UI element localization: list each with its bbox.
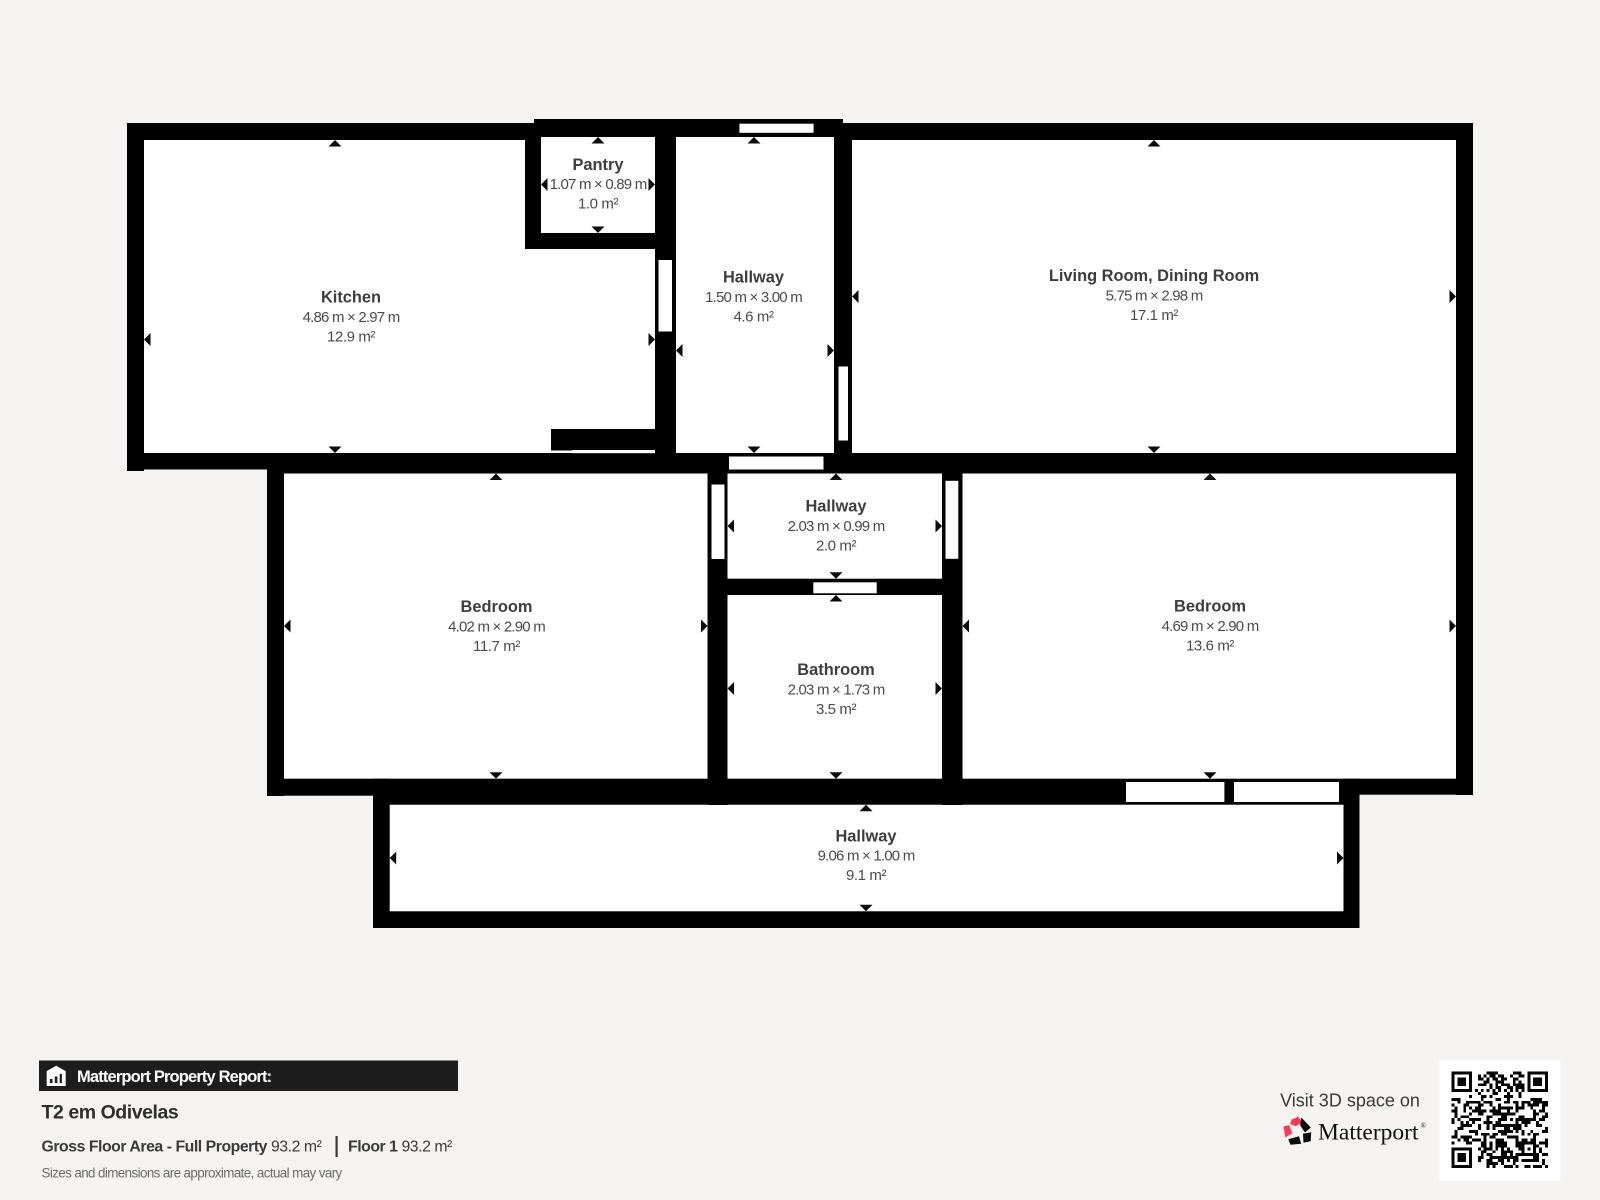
svg-text:1.50 m × 3.00 m: 1.50 m × 3.00 m [705, 289, 802, 306]
svg-text:Matterport Property Report:: Matterport Property Report: [77, 1068, 271, 1086]
svg-text:4.69 m × 2.90 m: 4.69 m × 2.90 m [1162, 618, 1259, 635]
svg-text:Hallway: Hallway [723, 269, 785, 287]
svg-text:4.02 m × 2.90 m: 4.02 m × 2.90 m [448, 618, 545, 635]
svg-text:1.0 m²: 1.0 m² [578, 196, 619, 213]
svg-text:Hallway: Hallway [835, 827, 897, 845]
svg-text:Bedroom: Bedroom [1174, 598, 1246, 616]
svg-text:Bedroom: Bedroom [461, 598, 533, 616]
svg-text:12.9 m²: 12.9 m² [327, 328, 375, 345]
svg-text:Bathroom: Bathroom [797, 661, 874, 679]
svg-text:Gross Floor Area - Full Proper: Gross Floor Area - Full Property 93.2 m² [42, 1138, 322, 1155]
svg-text:4.6 m²: 4.6 m² [733, 308, 774, 325]
svg-text:5.75 m × 2.98 m: 5.75 m × 2.98 m [1106, 287, 1203, 304]
svg-text:2.03 m × 1.73 m: 2.03 m × 1.73 m [788, 681, 885, 698]
svg-text:Floor 1 93.2 m²: Floor 1 93.2 m² [348, 1138, 452, 1155]
svg-text:1.07 m × 0.89 m: 1.07 m × 0.89 m [550, 176, 647, 193]
svg-text:17.1 m²: 17.1 m² [1130, 307, 1178, 324]
svg-text:Visit 3D space on: Visit 3D space on [1280, 1090, 1420, 1110]
svg-text:4.86 m × 2.97 m: 4.86 m × 2.97 m [303, 309, 400, 326]
svg-text:3.5 m²: 3.5 m² [816, 701, 857, 718]
svg-text:®: ® [1421, 1122, 1427, 1130]
svg-text:9.06 m × 1.00 m: 9.06 m × 1.00 m [818, 848, 915, 865]
svg-text:2.03 m × 0.99 m: 2.03 m × 0.99 m [788, 518, 885, 535]
svg-text:9.1 m²: 9.1 m² [846, 867, 887, 884]
svg-text:13.6 m²: 13.6 m² [1186, 637, 1234, 654]
svg-text:Matterport: Matterport [1318, 1120, 1419, 1146]
svg-text:Living Room, Dining Room: Living Room, Dining Room [1049, 267, 1259, 285]
svg-text:Hallway: Hallway [805, 498, 867, 516]
svg-text:T2 em Odivelas: T2 em Odivelas [42, 1102, 179, 1124]
svg-text:Kitchen: Kitchen [321, 289, 381, 307]
svg-text:Sizes and dimensions are appro: Sizes and dimensions are approximate, ac… [42, 1166, 343, 1181]
svg-text:2.0 m²: 2.0 m² [816, 537, 857, 554]
svg-text:11.7 m²: 11.7 m² [473, 638, 520, 655]
svg-text:Pantry: Pantry [572, 156, 624, 174]
